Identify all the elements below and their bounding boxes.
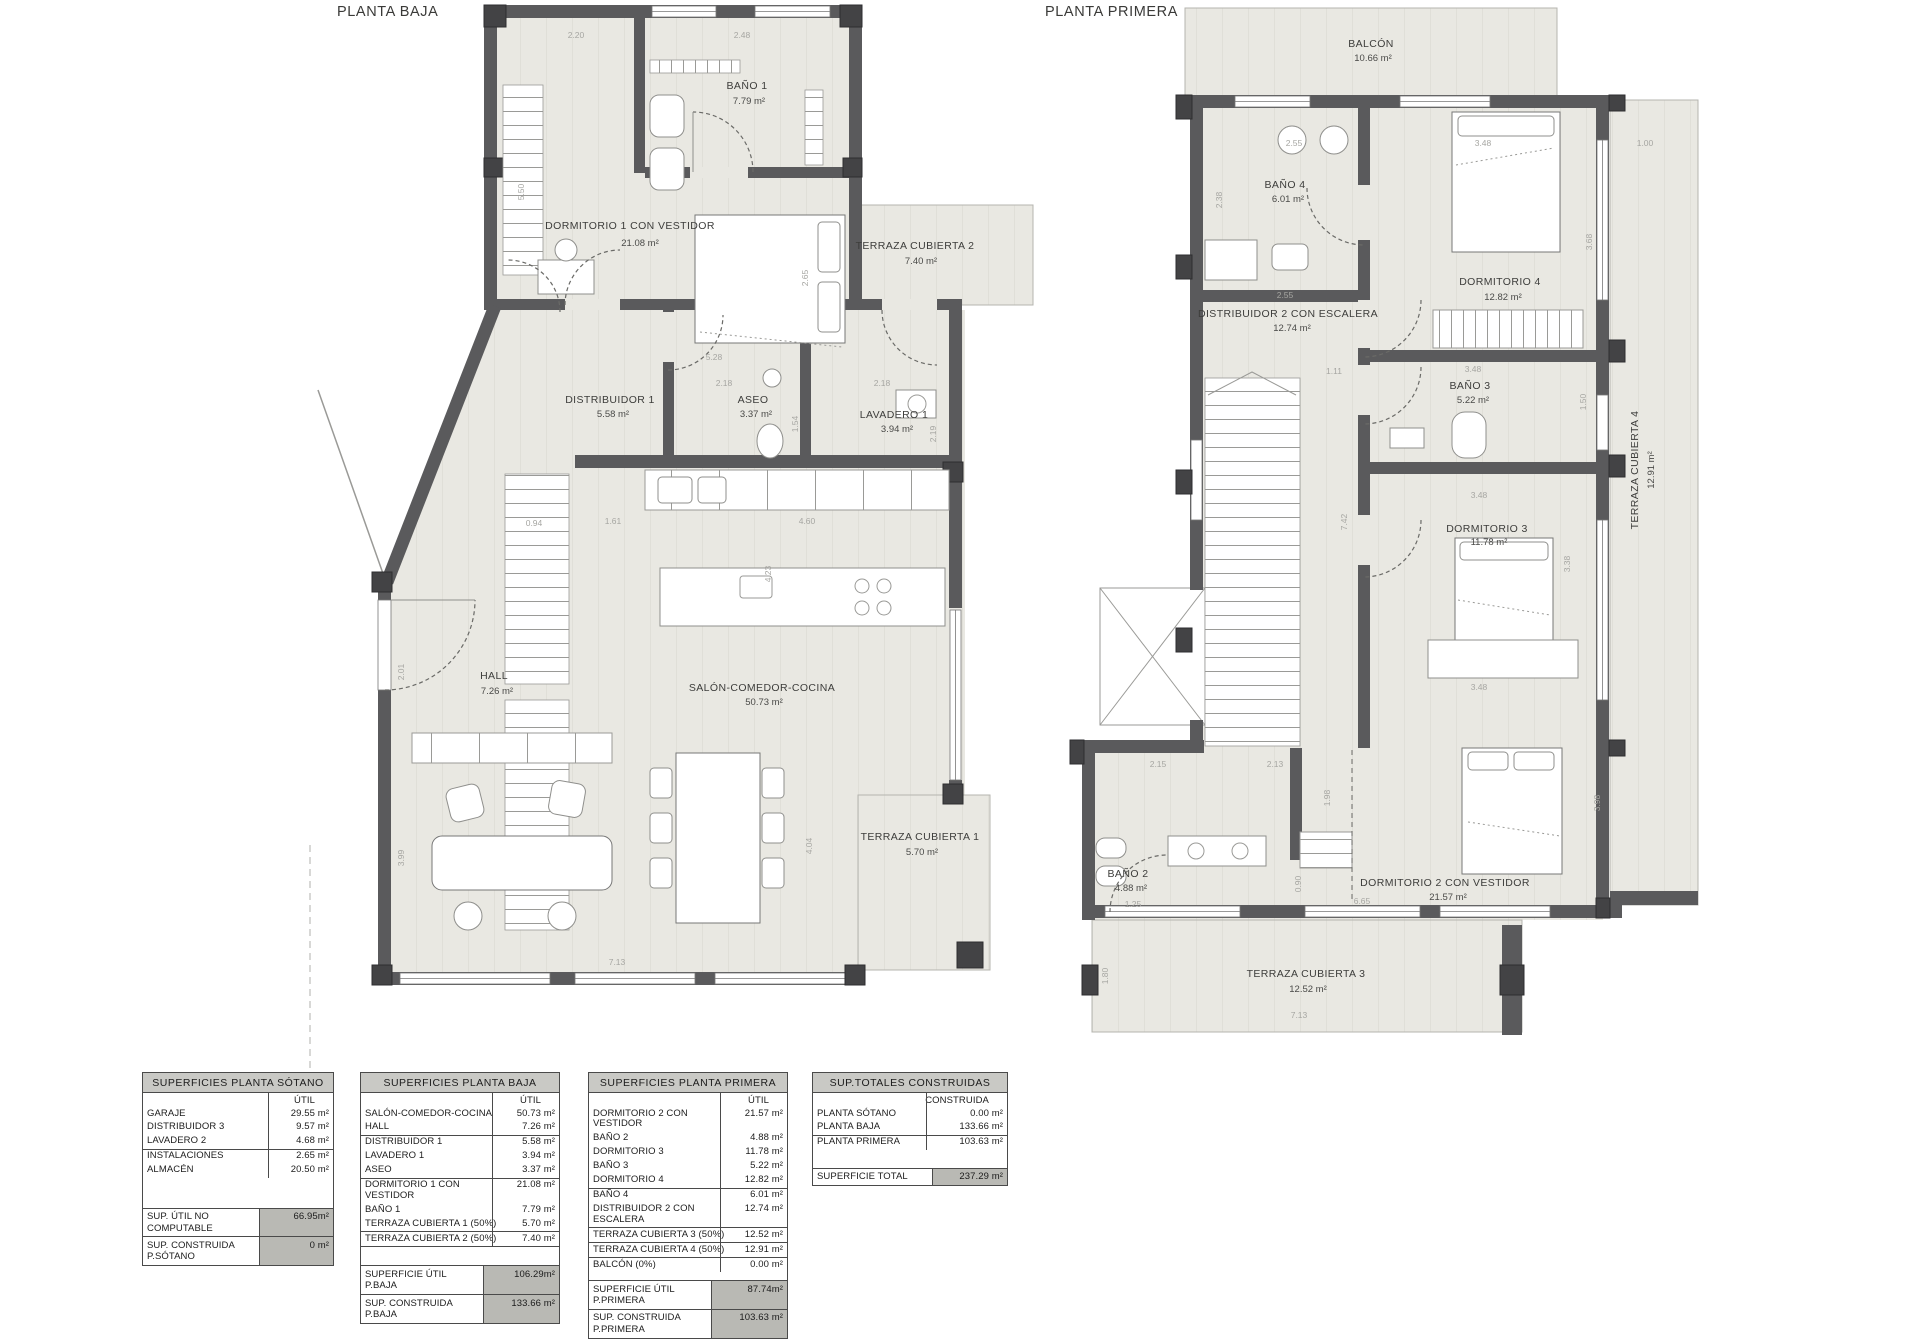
table-totales-construidas: SUP.TOTALES CONSTRUIDAS CONSTRUIDA PLANT… xyxy=(812,1072,1008,1186)
svg-text:7.13: 7.13 xyxy=(1291,1010,1308,1020)
table-superficies-planta-sotano: SUPERFICIES PLANTA SÓTANO ÚTIL GARAJE29.… xyxy=(142,1072,334,1266)
table-row: DISTRIBUIDOR 2 CON ESCALERA12.74 m² xyxy=(589,1202,787,1228)
table-row: DISTRIBUIDOR 15.58 m² xyxy=(361,1136,559,1150)
svg-text:3.48: 3.48 xyxy=(1475,138,1492,148)
table-row: PLANTA PRIMERA103.63 m² xyxy=(813,1136,1007,1150)
room-area-terraza2: 7.40 m² xyxy=(905,256,937,267)
svg-text:2.55: 2.55 xyxy=(1277,290,1294,300)
table-row: BALCÓN (0%)0.00 m² xyxy=(589,1258,787,1272)
room-label-terraza2: TERRAZA CUBIERTA 2 xyxy=(856,240,975,252)
svg-text:2.19: 2.19 xyxy=(928,425,938,442)
svg-text:1.11: 1.11 xyxy=(1326,366,1342,376)
column-header: ÚTIL xyxy=(361,1093,559,1107)
svg-text:3.38: 3.38 xyxy=(1562,555,1572,572)
table-row: TERRAZA CUBIERTA 3 (50%)12.52 m² xyxy=(589,1228,787,1243)
svg-text:2.55: 2.55 xyxy=(1286,138,1303,148)
table-total-row: SUP. ÚTIL NO COMPUTABLE66.95m² xyxy=(143,1208,333,1237)
staircase xyxy=(1205,372,1300,746)
table-row: INSTALACIONES2.65 m² xyxy=(143,1150,333,1164)
room-label-distribuidor2: DISTRIBUIDOR 2 CON ESCALERA xyxy=(1198,308,1378,320)
stair-void xyxy=(1100,588,1205,725)
room-label-hall: HALL xyxy=(480,670,508,682)
table-row: ASEO3.37 m² xyxy=(361,1164,559,1179)
table-row: BAÑO 46.01 m² xyxy=(589,1189,787,1203)
plan-title-baja: PLANTA BAJA xyxy=(337,4,438,20)
svg-text:4.60: 4.60 xyxy=(799,516,816,526)
svg-text:2.18: 2.18 xyxy=(874,378,891,388)
svg-text:1.50: 1.50 xyxy=(1578,393,1588,410)
table-total-row: SUP. CONSTRUIDA P.BAJA133.66 m² xyxy=(361,1294,559,1323)
table-row: DORMITORIO 311.78 m² xyxy=(589,1146,787,1160)
table-title: SUPERFICIES PLANTA SÓTANO xyxy=(142,1072,334,1093)
table-row: SALÓN-COMEDOR-COCINA50.73 m² xyxy=(361,1107,559,1121)
room-area-bano1: 7.79 m² xyxy=(733,96,765,107)
room-area-dormitorio3: 11.78 m² xyxy=(1471,537,1508,548)
svg-text:3.48: 3.48 xyxy=(1471,682,1488,692)
svg-text:1.80: 1.80 xyxy=(1100,967,1110,984)
planta-baja-plan: PLANTA BAJA BAÑO 1 7.79 m² DORMITORIO 1 … xyxy=(310,4,1033,1075)
table-row: HALL7.26 m² xyxy=(361,1121,559,1136)
room-area-dormitorio1: 21.08 m² xyxy=(621,238,659,249)
table-superficies-planta-primera: SUPERFICIES PLANTA PRIMERA ÚTIL DORMITOR… xyxy=(588,1072,788,1339)
svg-text:3.98: 3.98 xyxy=(1592,794,1602,811)
svg-text:6.65: 6.65 xyxy=(1354,896,1371,906)
room-label-dormitorio2: DORMITORIO 2 CON VESTIDOR xyxy=(1360,877,1530,889)
svg-text:7.13: 7.13 xyxy=(609,957,626,967)
table-row: BAÑO 24.88 m² xyxy=(589,1132,787,1146)
table-row: LAVADERO 13.94 m² xyxy=(361,1150,559,1164)
room-label-terraza3: TERRAZA CUBIERTA 3 xyxy=(1247,968,1366,980)
room-area-hall: 7.26 m² xyxy=(481,686,513,697)
room-area-lavadero1: 3.94 m² xyxy=(881,424,913,435)
room-area-distribuidor2: 12.74 m² xyxy=(1273,323,1311,334)
room-area-aseo: 3.37 m² xyxy=(740,409,772,420)
table-row: GARAJE29.55 m² xyxy=(143,1107,333,1121)
table-row: TERRAZA CUBIERTA 2 (50%)7.40 m² xyxy=(361,1232,559,1247)
table-row: LAVADERO 24.68 m² xyxy=(143,1135,333,1150)
room-label-bano3: BAÑO 3 xyxy=(1450,379,1491,392)
table-row: BAÑO 17.79 m² xyxy=(361,1203,559,1217)
room-area-bano2: 4.88 m² xyxy=(1115,883,1147,894)
table-row: DORMITORIO 1 CON VESTIDOR21.08 m² xyxy=(361,1179,559,1204)
svg-text:1.54: 1.54 xyxy=(790,415,800,432)
table-total-row: SUPERFICIE TOTAL237.29 m² xyxy=(813,1168,1007,1185)
room-label-salon: SALÓN-COMEDOR-COCINA xyxy=(689,681,835,694)
table-row: TERRAZA CUBIERTA 1 (50%)5.70 m² xyxy=(361,1217,559,1232)
room-area-balcon: 10.66 m² xyxy=(1354,53,1392,64)
svg-text:4.23: 4.23 xyxy=(763,565,773,582)
table-title: SUPERFICIES PLANTA PRIMERA xyxy=(588,1072,788,1093)
room-area-dormitorio2: 21.57 m² xyxy=(1429,892,1467,903)
room-label-bano4: BAÑO 4 xyxy=(1265,178,1306,191)
table-row: PLANTA BAJA133.66 m² xyxy=(813,1121,1007,1136)
bedroom4-furniture xyxy=(1433,112,1583,348)
table-row: BAÑO 35.22 m² xyxy=(589,1160,787,1174)
svg-text:1.25: 1.25 xyxy=(1125,899,1142,909)
svg-text:2.65: 2.65 xyxy=(800,269,810,286)
room-label-bano1: BAÑO 1 xyxy=(727,79,768,92)
svg-text:0.90: 0.90 xyxy=(1293,875,1303,892)
table-total-row: SUP. CONSTRUIDA P.PRIMERA103.63 m² xyxy=(589,1309,787,1338)
room-label-terraza1: TERRAZA CUBIERTA 1 xyxy=(861,831,980,843)
room-area-bano4: 6.01 m² xyxy=(1272,194,1304,205)
svg-text:2.13: 2.13 xyxy=(1267,759,1284,769)
room-label-dormitorio1: DORMITORIO 1 CON VESTIDOR xyxy=(545,220,715,232)
svg-text:0.94: 0.94 xyxy=(526,518,543,528)
room-label-balcon: BALCÓN xyxy=(1348,37,1394,50)
svg-text:5.50: 5.50 xyxy=(516,183,526,200)
room-area-terraza1: 5.70 m² xyxy=(906,847,938,858)
svg-text:3.48: 3.48 xyxy=(1465,364,1482,374)
svg-text:1.00: 1.00 xyxy=(1637,138,1654,148)
column-header: ÚTIL xyxy=(589,1093,787,1107)
svg-text:2.38: 2.38 xyxy=(1214,191,1224,208)
room-area-terraza4: 12.91 m² xyxy=(1646,451,1657,489)
table-title: SUPERFICIES PLANTA BAJA xyxy=(360,1072,560,1093)
svg-text:1.98: 1.98 xyxy=(1322,789,1332,806)
room-area-dormitorio4: 12.82 m² xyxy=(1484,292,1522,303)
column-header: CONSTRUIDA xyxy=(813,1093,1007,1107)
room-label-dormitorio3: DORMITORIO 3 xyxy=(1446,523,1528,535)
svg-text:3.48: 3.48 xyxy=(1471,490,1488,500)
room-label-lavadero1: LAVADERO 1 xyxy=(860,409,928,421)
table-row: TERRAZA CUBIERTA 4 (50%)12.91 m² xyxy=(589,1243,787,1258)
room-area-distribuidor1: 5.58 m² xyxy=(597,409,629,420)
room-label-bano2: BAÑO 2 xyxy=(1108,867,1149,880)
table-title: SUP.TOTALES CONSTRUIDAS xyxy=(812,1072,1008,1093)
planta-primera-plan: PLANTA PRIMERA BALCÓN 10.66 m² BAÑO 4 6.… xyxy=(1045,4,1698,1035)
table-row: PLANTA SÓTANO0.00 m² xyxy=(813,1107,1007,1121)
svg-text:2.18: 2.18 xyxy=(716,378,733,388)
table-total-row: SUP. CONSTRUIDA P.SÓTANO0 m² xyxy=(143,1236,333,1265)
eave-line xyxy=(318,390,386,582)
room-label-aseo: ASEO xyxy=(738,394,769,406)
table-superficies-planta-baja: SUPERFICIES PLANTA BAJA ÚTIL SALÓN-COMED… xyxy=(360,1072,560,1324)
svg-text:2.15: 2.15 xyxy=(1150,759,1167,769)
column-header: ÚTIL xyxy=(143,1093,333,1107)
svg-text:3.99: 3.99 xyxy=(396,849,406,866)
plan-title-primera: PLANTA PRIMERA xyxy=(1045,4,1178,20)
room-area-bano3: 5.22 m² xyxy=(1457,395,1489,406)
floor-plan-sheet: { "plans": { "baja": { "title": "PLANTA … xyxy=(0,0,1920,1280)
svg-text:2.48: 2.48 xyxy=(734,30,751,40)
table-row: DORMITORIO 2 CON VESTIDOR21.57 m² xyxy=(589,1107,787,1132)
svg-text:2.01: 2.01 xyxy=(396,663,406,680)
room-label-terraza4: TERRAZA CUBIERTA 4 xyxy=(1629,411,1641,530)
table-row: ALMACÉN20.50 m² xyxy=(143,1164,333,1178)
table-row: DORMITORIO 412.82 m² xyxy=(589,1174,787,1189)
svg-text:1.61: 1.61 xyxy=(605,516,622,526)
room-label-distribuidor1: DISTRIBUIDOR 1 xyxy=(565,394,655,406)
svg-text:5.28: 5.28 xyxy=(706,352,723,362)
table-row: DISTRIBUIDOR 39.57 m² xyxy=(143,1121,333,1135)
svg-text:4.04: 4.04 xyxy=(804,837,814,854)
table-total-row: SUPERFICIE ÚTIL P.PRIMERA87.74m² xyxy=(589,1280,787,1309)
svg-text:3.68: 3.68 xyxy=(1584,233,1594,250)
room-label-dormitorio4: DORMITORIO 4 xyxy=(1459,276,1541,288)
room-area-terraza3: 12.52 m² xyxy=(1289,984,1327,995)
room-area-salon: 50.73 m² xyxy=(745,697,783,708)
svg-text:2.20: 2.20 xyxy=(568,30,585,40)
svg-text:7.42: 7.42 xyxy=(1339,513,1349,530)
